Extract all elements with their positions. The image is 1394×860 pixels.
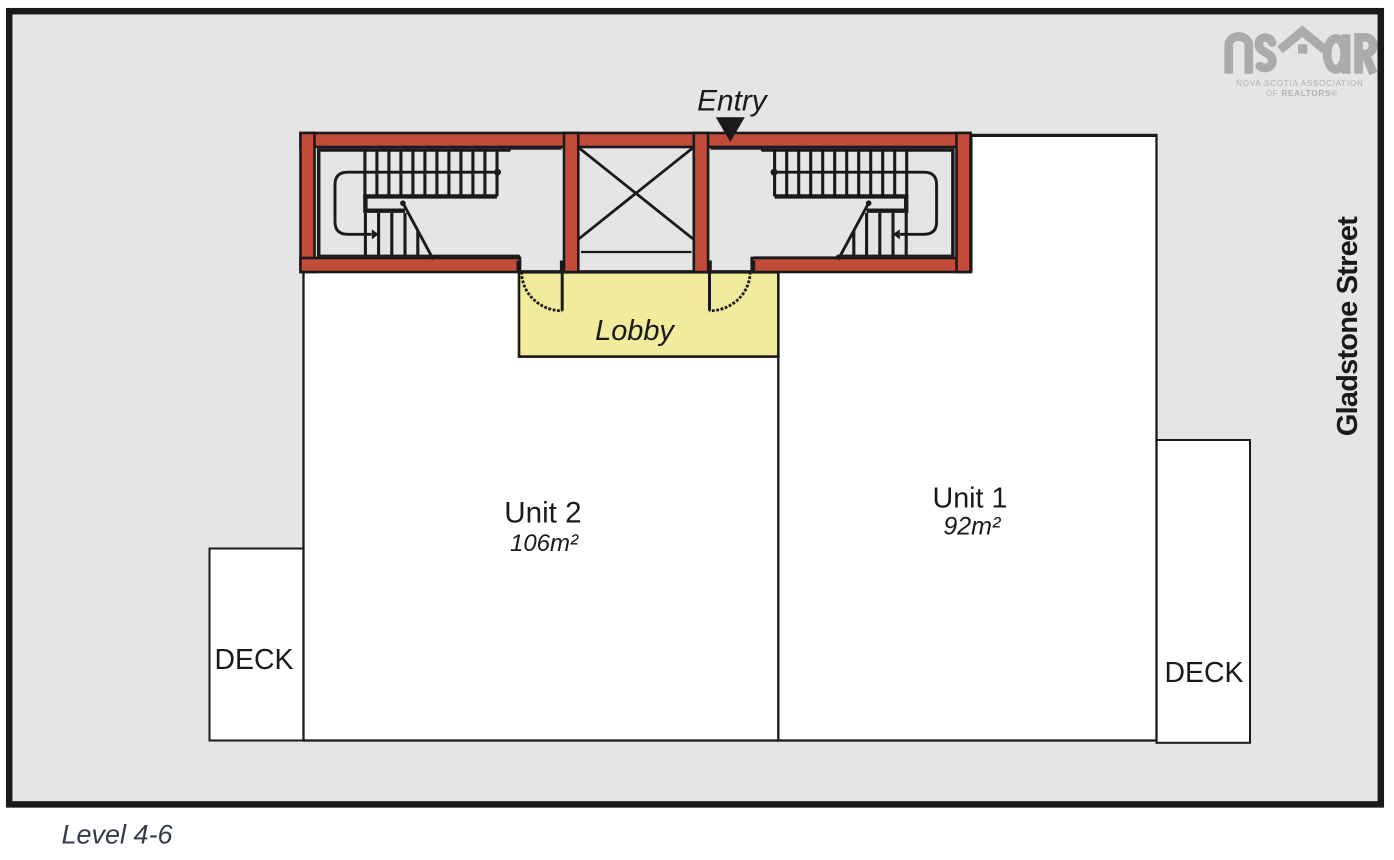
svg-text:NOVA SCOTIA ASSOCIATION: NOVA SCOTIA ASSOCIATION — [1236, 79, 1363, 88]
svg-text:106m²: 106m² — [510, 530, 579, 557]
svg-text:92m²: 92m² — [943, 513, 1002, 541]
svg-text:DECK: DECK — [215, 644, 294, 676]
svg-text:DECK: DECK — [1165, 657, 1244, 689]
svg-text:OF REALTORS®: OF REALTORS® — [1266, 89, 1338, 98]
svg-text:Lobby: Lobby — [595, 315, 675, 347]
svg-text:Unit 1: Unit 1 — [933, 482, 1008, 514]
svg-text:Level 4-6: Level 4-6 — [62, 820, 174, 850]
svg-text:Gladstone Street: Gladstone Street — [1332, 216, 1364, 436]
svg-text:Entry: Entry — [697, 84, 769, 117]
svg-text:Unit 2: Unit 2 — [504, 496, 581, 529]
